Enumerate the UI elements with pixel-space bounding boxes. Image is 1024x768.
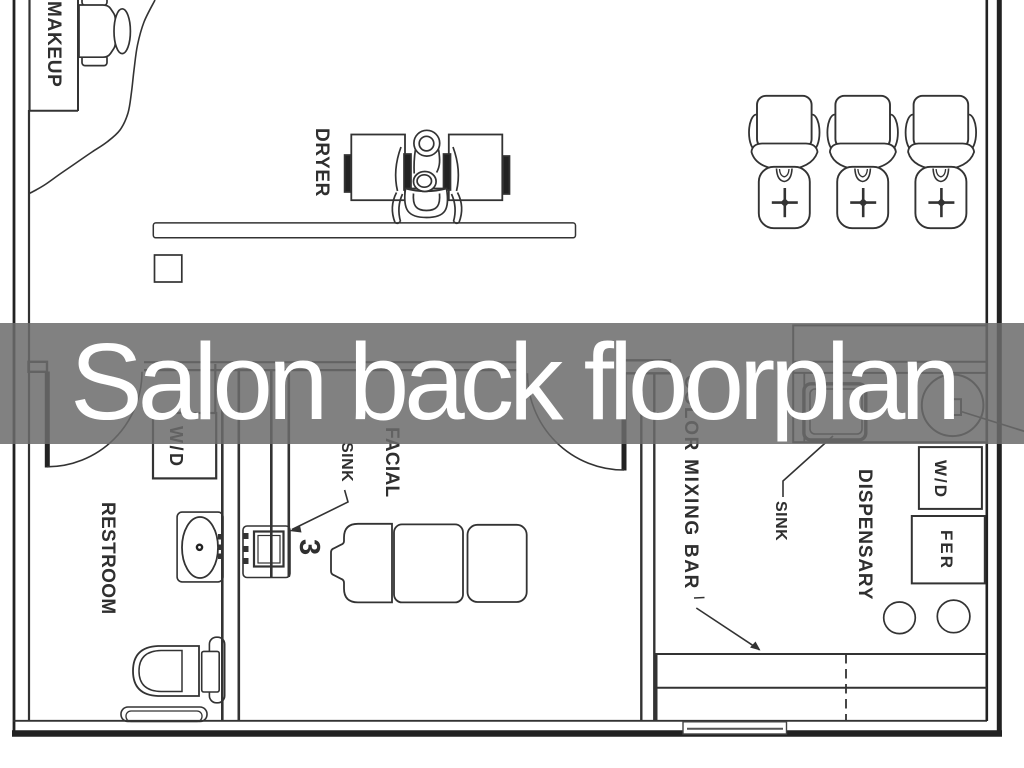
svg-text:FER: FER (937, 530, 956, 570)
svg-text:3: 3 (293, 539, 325, 555)
svg-text:SINK: SINK (338, 442, 355, 482)
svg-text:W/D: W/D (931, 460, 950, 499)
svg-text:SINK: SINK (772, 501, 789, 541)
svg-text:DISPENSARY: DISPENSARY (854, 469, 875, 600)
svg-text:RESTROOM: RESTROOM (97, 502, 118, 615)
svg-text:DRYER: DRYER (311, 128, 332, 197)
svg-text:MAKEUP: MAKEUP (43, 1, 64, 88)
